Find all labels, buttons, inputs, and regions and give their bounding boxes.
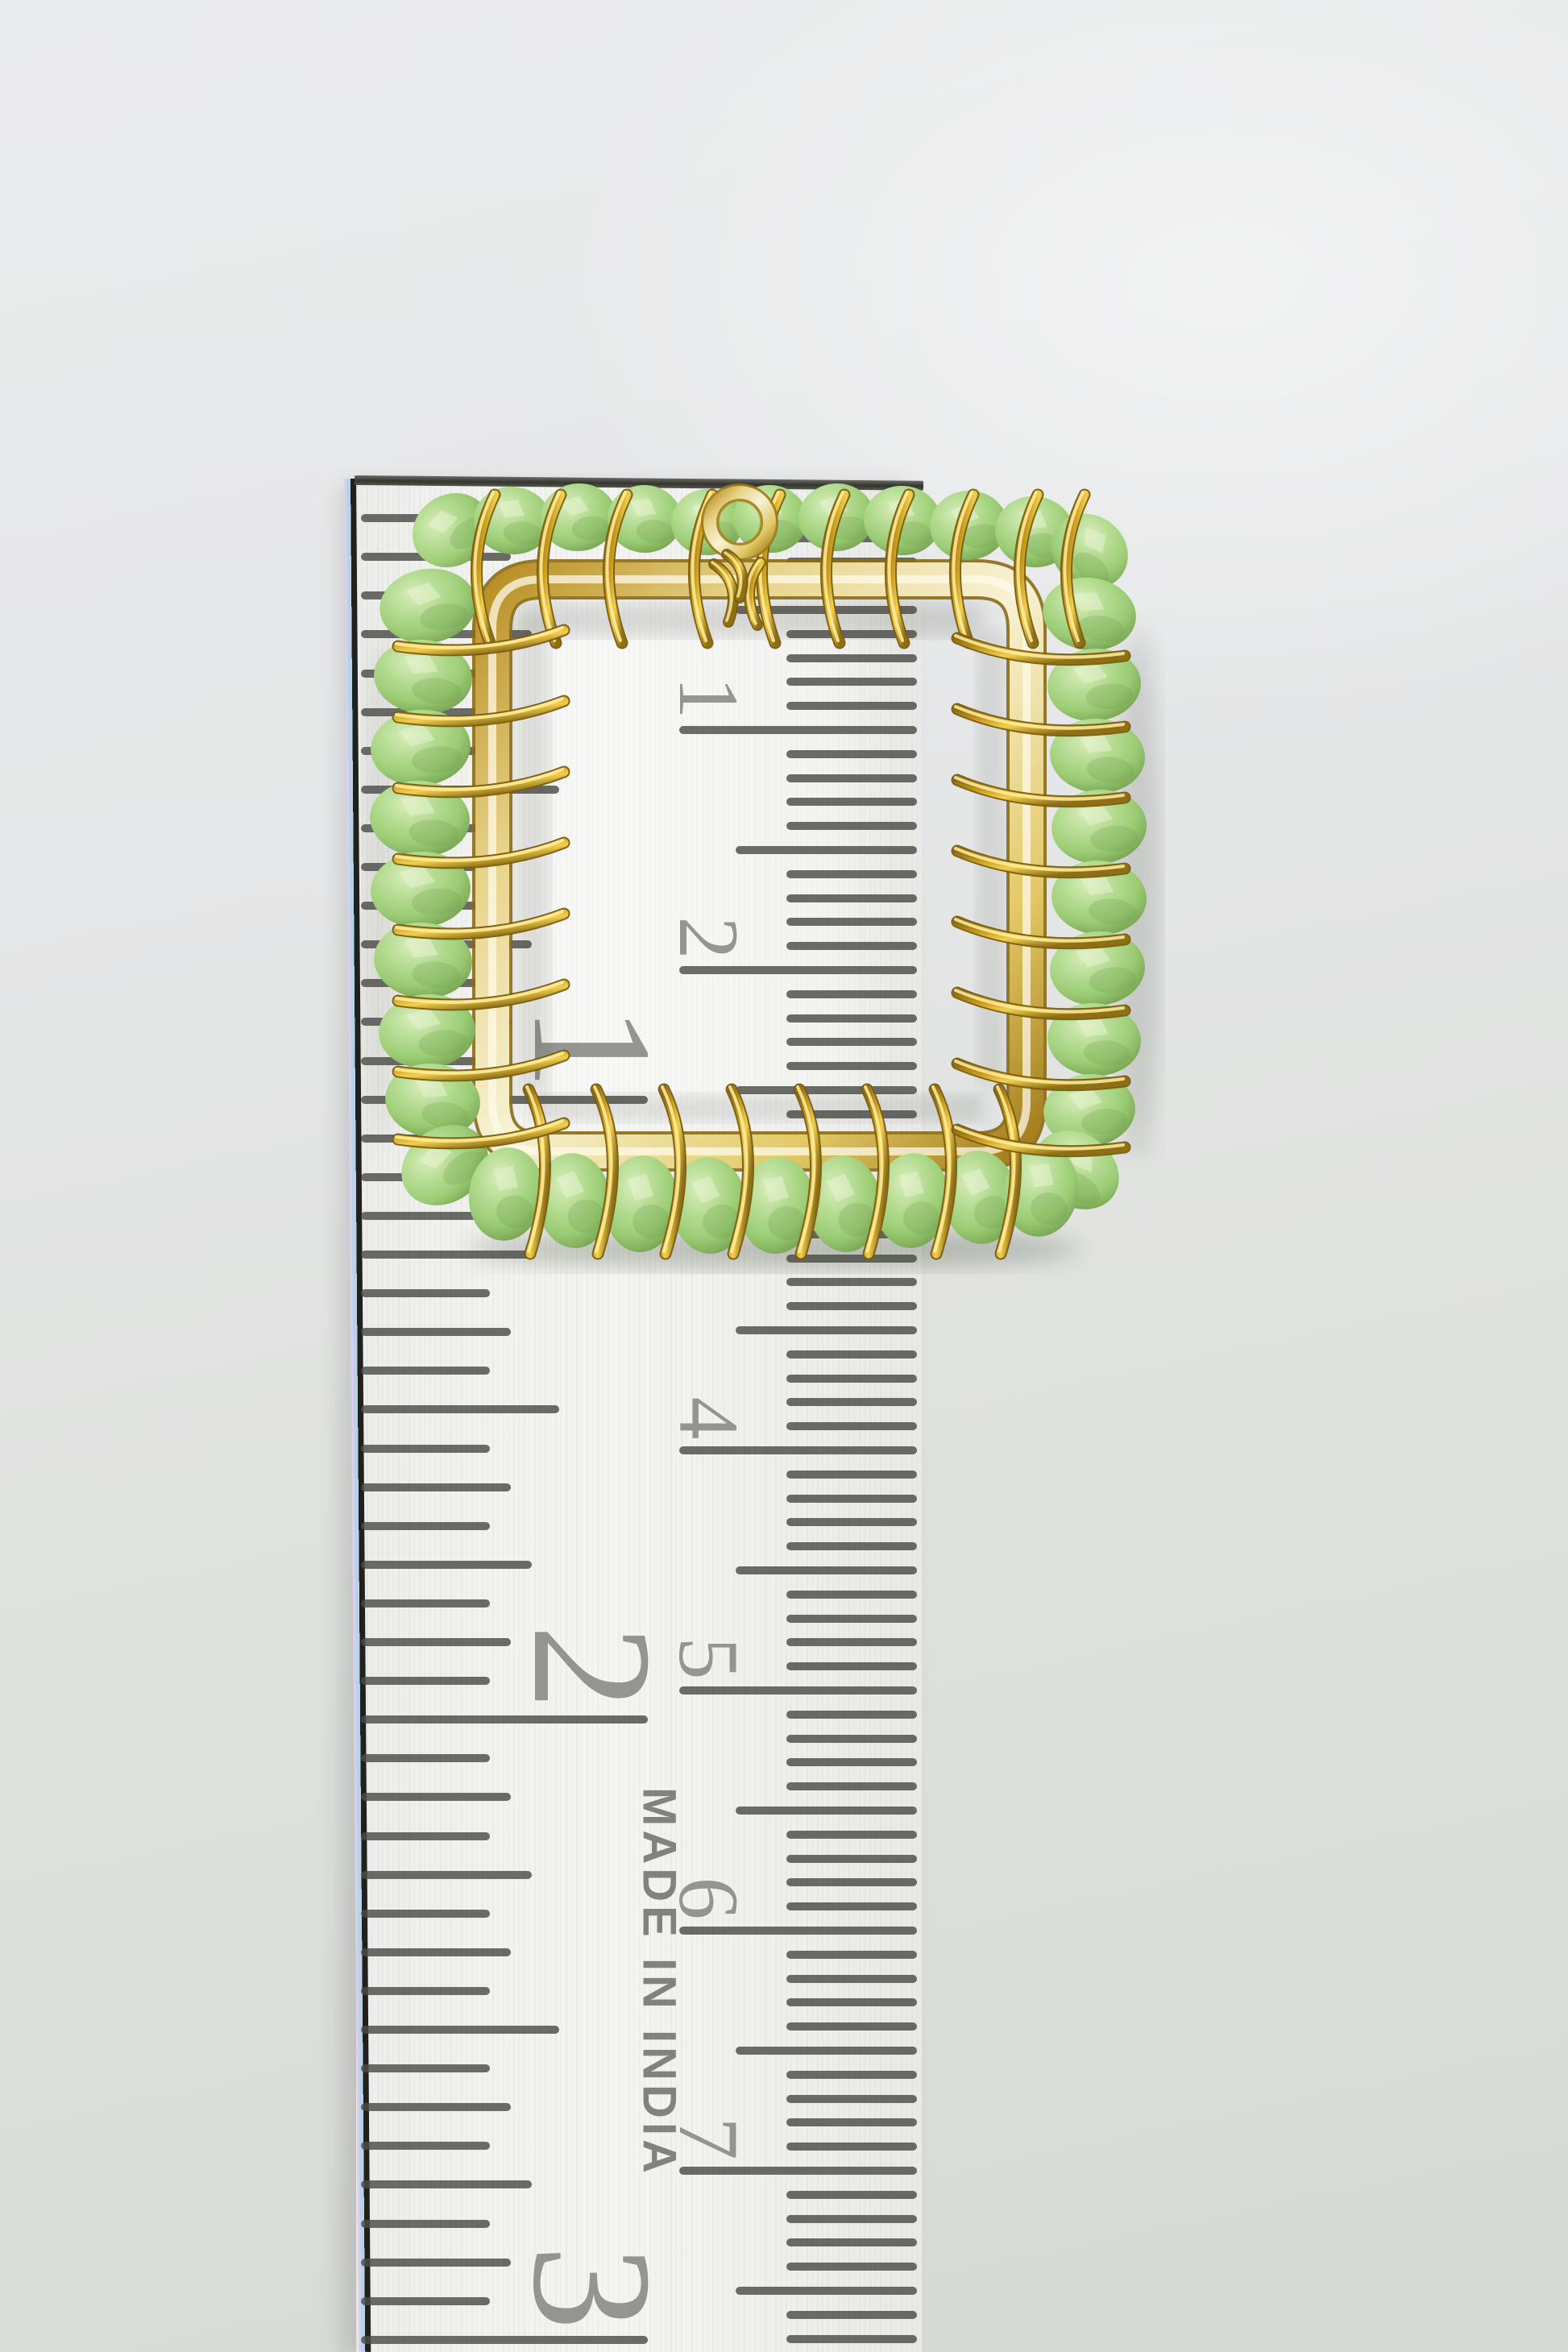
mm-tick: [786, 1662, 917, 1670]
inch-tick: [361, 1871, 532, 1879]
mm-tick: [679, 2167, 917, 2175]
inch-tick: [361, 1445, 490, 1453]
mm-tick: [679, 1446, 917, 1454]
bead: [1038, 571, 1140, 656]
mm-tick: [786, 1542, 917, 1550]
inch-tick: [361, 1832, 490, 1840]
mm-tick: [786, 2095, 917, 2103]
cm-number: 4: [666, 1397, 751, 1440]
mm-tick: [786, 2311, 917, 2319]
inch-tick: [361, 2297, 490, 2305]
cm-number: 5: [666, 1637, 751, 1680]
bead: [375, 562, 481, 649]
inch-tick: [361, 2026, 559, 2034]
mm-tick: [786, 1422, 917, 1430]
mm-tick: [786, 1758, 917, 1766]
inch-tick: [361, 2336, 648, 2344]
mm-tick: [786, 1711, 917, 1719]
pendant-frame: [492, 579, 1027, 1151]
mm-tick: [786, 1471, 917, 1479]
made-in-india-text: MADE IN INDIA: [633, 1787, 687, 2177]
mm-tick: [786, 2238, 917, 2246]
inch-tick: [361, 2064, 490, 2072]
mm-tick: [786, 2335, 917, 2343]
inch-tick: [361, 1754, 490, 1762]
mm-tick: [786, 1398, 917, 1406]
mm-tick: [786, 1518, 917, 1526]
inch-tick: [361, 1715, 648, 1724]
inch-tick: [361, 1522, 490, 1530]
mm-tick: [786, 2143, 917, 2151]
mm-tick: [786, 1902, 917, 1910]
inch-tick: [361, 1793, 511, 1801]
inch-tick: [361, 1948, 511, 1956]
inch-tick: [361, 2103, 511, 2111]
inch-tick: [361, 2220, 490, 2228]
mm-tick: [786, 1782, 917, 1790]
beaded-square-pendant: [322, 427, 1209, 1338]
inch-tick: [361, 1405, 559, 1413]
mm-tick: [786, 2263, 917, 2271]
inch-tick: [361, 1910, 490, 1918]
mm-tick: [786, 1975, 917, 1983]
mm-tick: [679, 1686, 917, 1695]
inch-tick: [361, 1987, 490, 1995]
inch-tick: [361, 2259, 511, 2267]
inch-number: 2: [507, 1624, 678, 1710]
mm-tick: [786, 1855, 917, 1863]
inch-tick: [361, 1638, 511, 1646]
mm-tick: [736, 2287, 917, 2295]
inch-tick: [361, 1561, 532, 1569]
mm-tick: [736, 1566, 917, 1574]
mm-tick: [786, 1375, 917, 1383]
mm-tick: [786, 1591, 917, 1599]
mm-tick: [786, 1831, 917, 1839]
inch-tick: [361, 2142, 490, 2150]
mm-tick: [786, 2215, 917, 2223]
mm-tick: [679, 1927, 917, 1935]
mm-tick: [786, 1350, 917, 1359]
inch-tick: [361, 1677, 490, 1685]
mm-tick: [786, 1951, 917, 1959]
mm-tick: [786, 2071, 917, 2079]
inch-number: 3: [507, 2245, 678, 2330]
mm-tick: [786, 1638, 917, 1646]
mm-tick: [786, 1998, 917, 2006]
mm-tick: [786, 1735, 917, 1743]
mm-tick: [786, 1615, 917, 1623]
mm-tick: [736, 1807, 917, 1815]
mm-tick: [786, 2118, 917, 2126]
inch-tick: [361, 1367, 490, 1375]
product-photo-scene: 123124567 MADE IN INDIA: [0, 0, 1568, 2352]
mm-tick: [786, 2022, 917, 2031]
inch-tick: [361, 2180, 532, 2188]
mm-tick: [786, 1495, 917, 1503]
mm-tick: [786, 2191, 917, 2199]
inch-tick: [361, 1599, 490, 1607]
mm-tick: [786, 1878, 917, 1886]
inch-tick: [361, 1483, 511, 1491]
mm-tick: [736, 2047, 917, 2055]
